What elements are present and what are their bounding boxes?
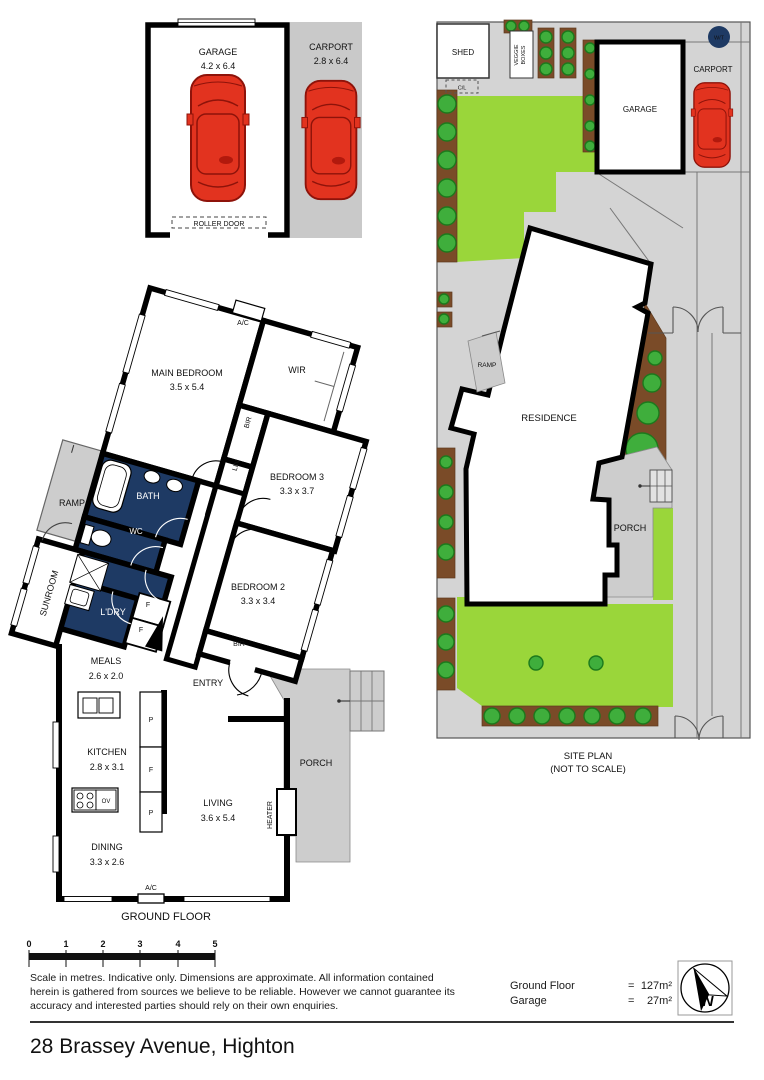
veggie-label-2: BOXES [521, 45, 527, 64]
front-lawn-shrub-icon [529, 656, 543, 670]
main-bedroom-dims: 3.5 x 5.4 [170, 382, 205, 392]
site-porch-label: PORCH [614, 523, 647, 533]
garage-area-label: Garage [510, 995, 547, 1007]
kitchen-dims: 2.8 x 3.1 [90, 762, 125, 772]
bedroom2-bir-label: BIR [233, 641, 245, 648]
front-lawn-shrub-icon [589, 656, 603, 670]
disclaimer-line-1: Scale in metres. Indicative only. Dimens… [30, 972, 434, 984]
ground-floor-area-value: 127m² [641, 980, 673, 992]
front-lawn [457, 597, 673, 707]
wc-label: WC [129, 527, 143, 536]
garage-area-value: 27m² [647, 995, 672, 1007]
cupboard-f1-label: F [146, 602, 150, 609]
pantry-p2-label: P [149, 810, 154, 817]
site-ramp-label: RAMP [478, 362, 497, 369]
bedroom3-dims: 3.3 x 3.7 [280, 486, 315, 496]
scale-tick-5: 5 [212, 939, 217, 949]
floorplan-canvas: GARAGE 4.2 x 6.4 CARPORT 2.8 x 6.4 ROLLE… [0, 0, 764, 1080]
garage-eq: = [628, 995, 634, 1007]
living-label: LIVING [203, 798, 233, 808]
scale-tick-2: 2 [100, 939, 105, 949]
kitchen-label: KITCHEN [87, 747, 127, 757]
garage-plan-dims: 4.2 x 6.4 [201, 61, 236, 71]
kitchen-bench-sink [78, 692, 120, 718]
veggie-label-1: VEGGIE [514, 44, 520, 65]
wall [228, 716, 288, 722]
ac-top-label: A/C [237, 320, 249, 327]
cupboard-f2-label: F [139, 627, 143, 634]
carport-car-icon [302, 81, 360, 199]
ac-bottom-label: A/C [145, 885, 157, 892]
bedroom2-dims: 3.3 x 3.4 [241, 596, 276, 606]
clothesline-label: C/L [458, 86, 467, 92]
carport-plan-label: CARPORT [309, 42, 353, 52]
carport-plan-dims: 2.8 x 6.4 [314, 56, 349, 66]
heater-niche-icon [277, 789, 296, 835]
shed-label: SHED [452, 48, 474, 57]
dining-label: DINING [91, 842, 123, 852]
site-plan: W/T SHED C/L VEGGIE BOXES GARAGE CARPORT… [437, 20, 750, 775]
left-garden-bed-lower [437, 448, 455, 578]
garage-car-icon [187, 75, 249, 201]
site-plan-caption-1: SITE PLAN [564, 751, 613, 762]
ground-floor-title: GROUND FLOOR [121, 911, 211, 923]
wir-label: WIR [288, 365, 306, 375]
entry-label: ENTRY [193, 678, 223, 688]
porch-label: PORCH [300, 758, 333, 768]
ground-floor-area-label: Ground Floor [510, 980, 575, 992]
heater-label: HEATER [267, 801, 274, 829]
property-address: 28 Brassey Avenue, Highton [30, 1035, 295, 1058]
site-carport-label: CARPORT [694, 65, 733, 74]
bedroom3-label: BEDROOM 3 [270, 472, 324, 482]
site-carport-car-icon [691, 83, 733, 167]
laundry-label: L'DRY [100, 607, 126, 617]
bath-label: BATH [136, 491, 159, 501]
scale-tick-0: 0 [26, 939, 31, 949]
disclaimer-line-2: herein is gathered from sources we belie… [30, 986, 455, 998]
scale-tick-3: 3 [137, 939, 142, 949]
side-lawn-strip [653, 508, 673, 600]
front-left-garden-bed [437, 598, 455, 690]
roller-door-opening [170, 228, 268, 240]
ac-unit-bottom-icon [138, 894, 164, 903]
floorplan-page: GARAGE 4.2 x 6.4 CARPORT 2.8 x 6.4 ROLLE… [0, 0, 764, 1080]
disclaimer-line-3: accuracy and interested parties should r… [30, 1000, 338, 1012]
main-bedroom-label: MAIN BEDROOM [151, 368, 223, 378]
living-dims: 3.6 x 5.4 [201, 813, 236, 823]
cooktop-oven-icon [72, 788, 118, 812]
roller-door-label: ROLLER DOOR [194, 221, 245, 228]
bedroom2-label: BEDROOM 2 [231, 582, 285, 592]
scale-tick-4: 4 [175, 939, 180, 949]
dining-dims: 3.3 x 2.6 [90, 857, 125, 867]
oven-label: OV [102, 799, 111, 805]
ramp-label: RAMP [59, 498, 85, 508]
garage-carport-plan: GARAGE 4.2 x 6.4 CARPORT 2.8 x 6.4 ROLLE… [148, 19, 362, 240]
ground-floor-eq: = [628, 980, 634, 992]
scale-tick-1: 1 [63, 939, 68, 949]
site-garage-label: GARAGE [623, 105, 657, 114]
meals-label: MEALS [91, 656, 122, 666]
left-garden-bed-upper [437, 90, 457, 262]
pantry-p1-label: P [149, 717, 154, 724]
front-garden-bed [482, 706, 658, 726]
site-plan-caption-2: (NOT TO SCALE) [550, 764, 626, 775]
north-compass-icon: N [678, 961, 732, 1015]
meals-dims: 2.6 x 2.0 [89, 671, 124, 681]
water-tank-label: W/T [714, 36, 725, 42]
site-residence-label: RESIDENCE [521, 413, 576, 424]
pantry-f-label: F [149, 767, 153, 774]
garage-plan-label: GARAGE [199, 47, 238, 57]
north-label: N [703, 993, 715, 1010]
